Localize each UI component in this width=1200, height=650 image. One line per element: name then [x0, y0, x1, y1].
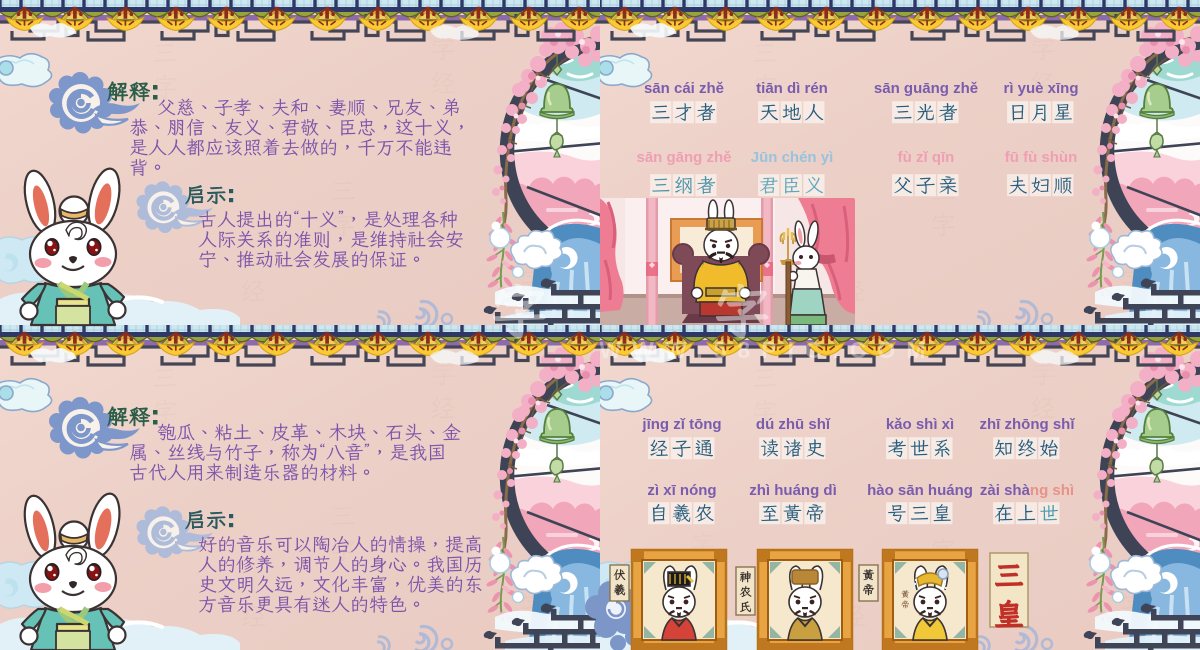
svg-text:sān cái zhě: sān cái zhě [644, 80, 724, 97]
svg-text:sān gāng zhě: sān gāng zhě [636, 149, 731, 166]
svg-text:kǎo shì xì: kǎo shì xì [886, 416, 954, 433]
svg-text:zì xī nóng: zì xī nóng [647, 482, 716, 499]
svg-text:jīng zǐ tōng: jīng zǐ tōng [641, 416, 721, 433]
svg-text:fū fù shùn: fū fù shùn [1005, 149, 1077, 166]
svg-text:zhī zhōng shǐ: zhī zhōng shǐ [980, 416, 1076, 433]
svg-text:sān guāng zhě: sān guāng zhě [874, 80, 978, 97]
svg-text:zhì huáng dì: zhì huáng dì [749, 482, 837, 499]
svg-text:dú zhū shǐ: dú zhū shǐ [756, 416, 831, 433]
svg-text:zài shàng shì: zài shàng shì [980, 482, 1074, 499]
svg-text:Jūn chén yì: Jūn chén yì [751, 149, 834, 166]
svg-text:tiān dì rén: tiān dì rén [756, 80, 828, 97]
svg-text:fù zǐ qīn: fù zǐ qīn [898, 149, 955, 166]
svg-text:hào sān huáng: hào sān huáng [867, 482, 973, 499]
svg-text:rì yuè xīng: rì yuè xīng [1003, 80, 1078, 97]
svg-text:WWW.58PIC.COM: WWW.58PIC.COM [599, 337, 936, 363]
